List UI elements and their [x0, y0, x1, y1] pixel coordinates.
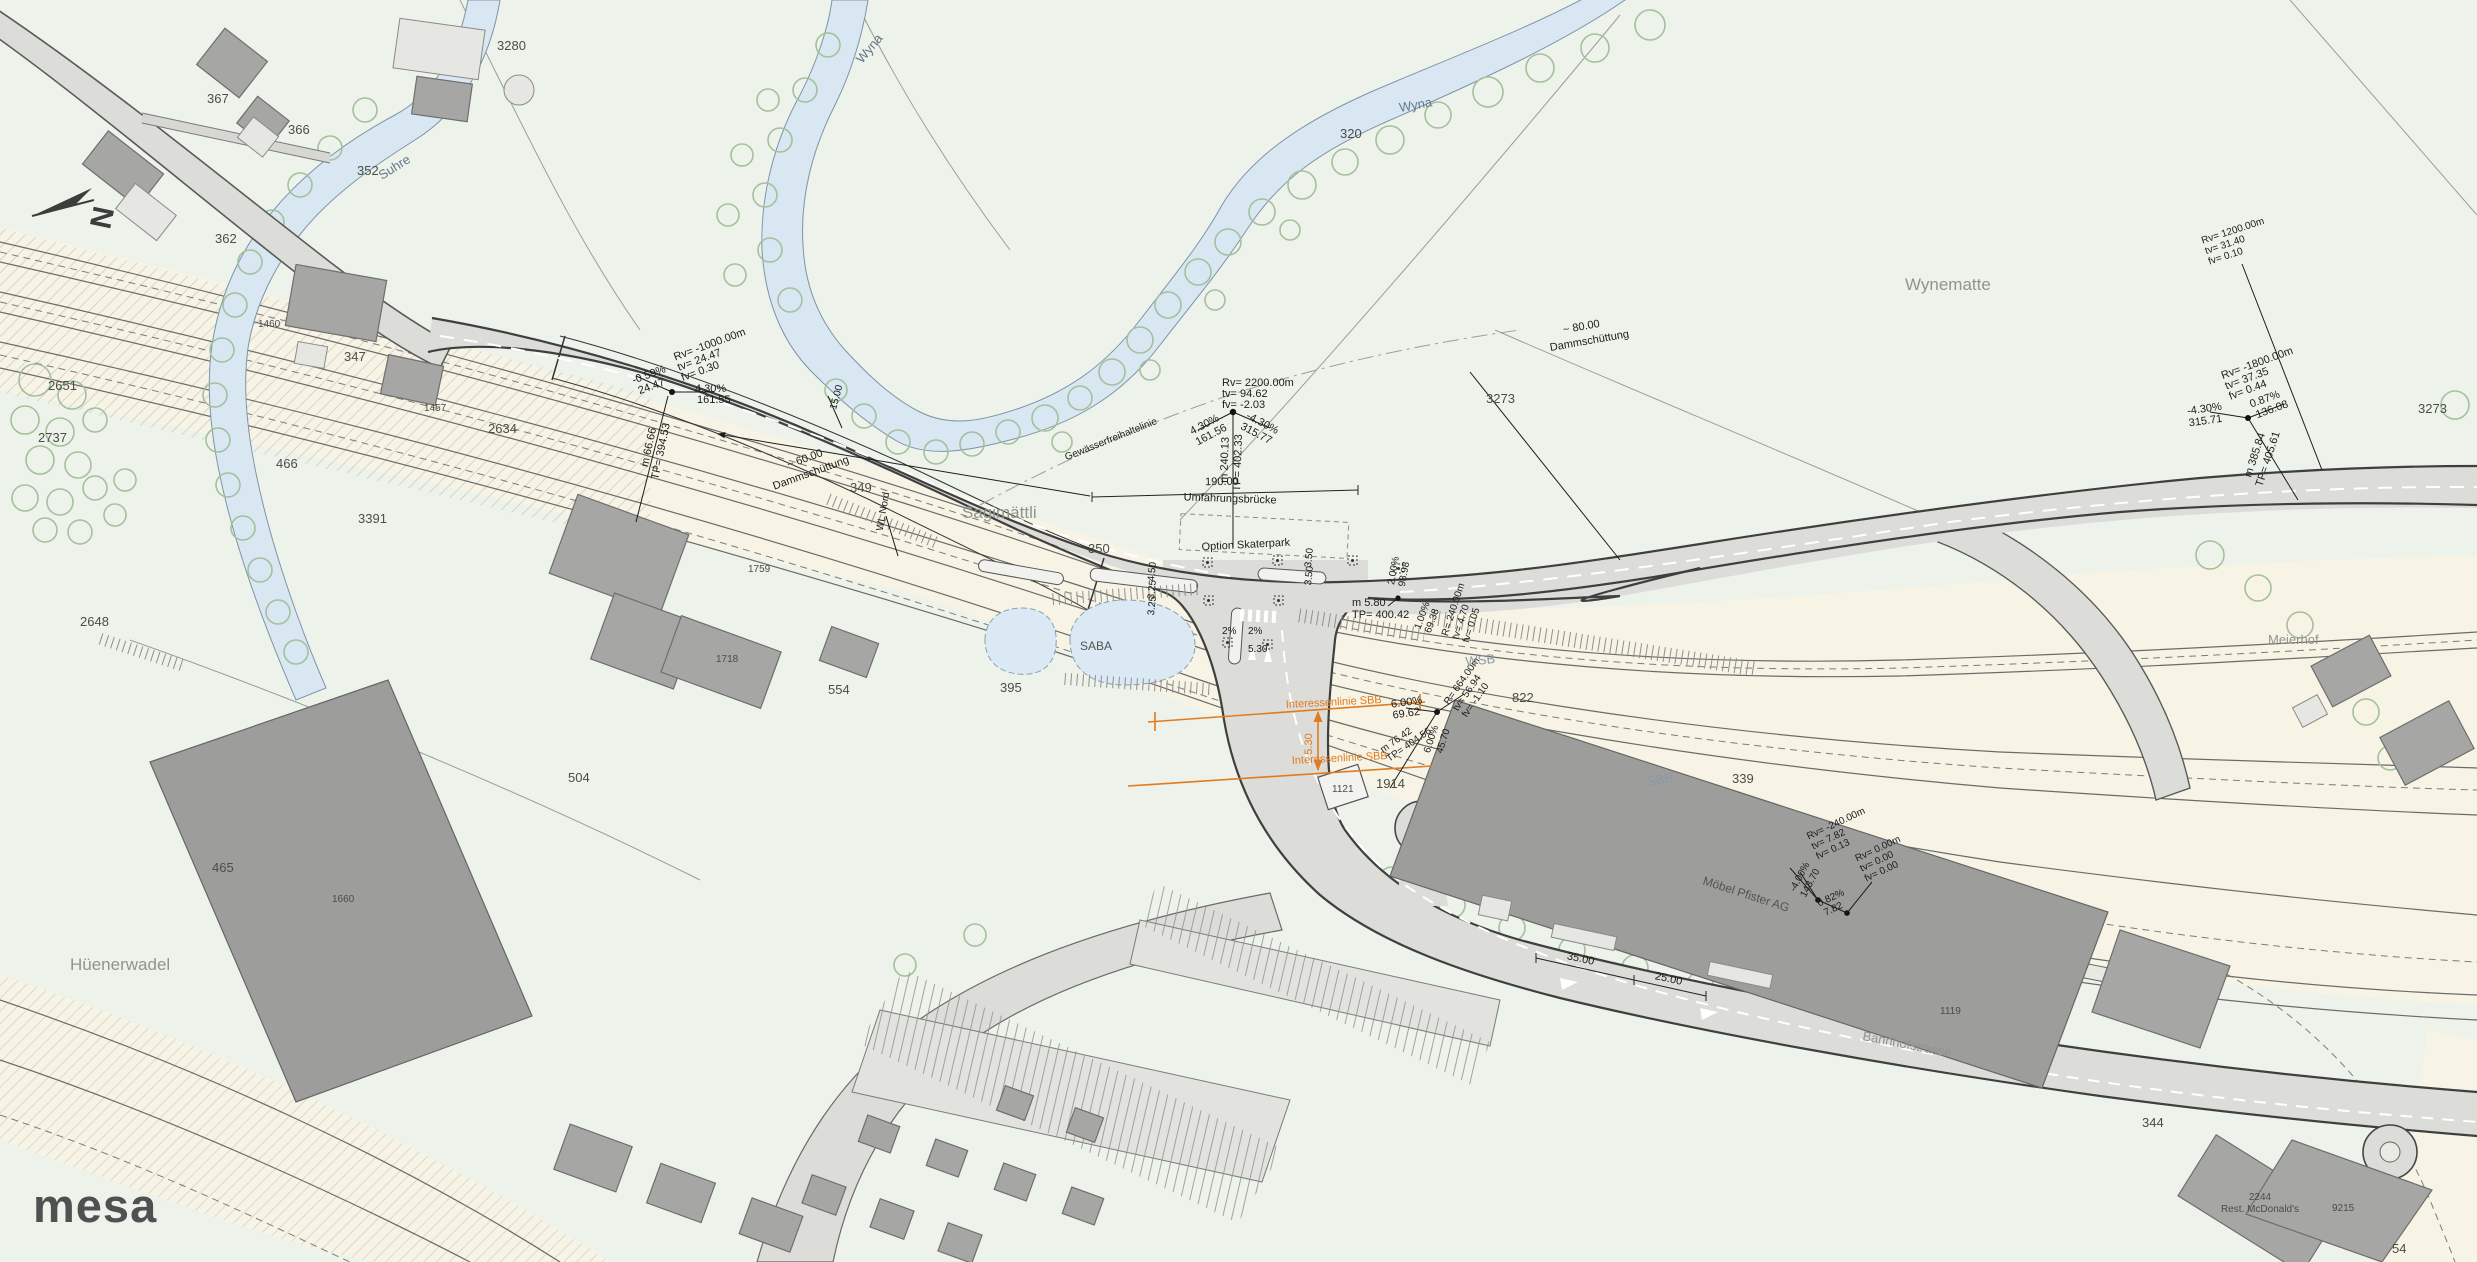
parcel: 362 — [215, 231, 237, 246]
parcel: 54 — [2392, 1241, 2406, 1256]
ann-a-s2b: 161.55 — [697, 394, 731, 406]
parcel: 320 — [1340, 126, 1362, 141]
annotation-c-slope1: -4.30% 315.71 — [2186, 401, 2224, 430]
parcel: 2648 — [80, 614, 109, 629]
plan-canvas: Interessenlinie SBB Interessenlinie SBB … — [0, 0, 2477, 1262]
area-wynematte: Wynematte — [1905, 275, 1991, 294]
north-arrow: N — [32, 188, 120, 231]
north-letter: N — [83, 203, 120, 231]
parcel: 3280 — [497, 38, 526, 53]
parcel: 1914 — [1376, 776, 1405, 791]
area-sagimaettli: Sagimättli — [962, 503, 1037, 522]
lane-width-1: 4.50 — [1146, 561, 1159, 582]
building — [197, 28, 268, 97]
annotation-a-block: Rv= -1000.00m tv= 24.47 fv= 0.30 — [672, 326, 755, 384]
orange-dim-530: 5.30 — [1303, 733, 1315, 754]
building — [294, 342, 327, 369]
silo — [504, 75, 534, 105]
bridge-name: Umfahrungsbrücke — [1183, 491, 1276, 506]
industrial-building — [150, 680, 532, 1102]
damm-east-label: Dammschüttung — [1549, 328, 1630, 354]
building — [647, 1163, 716, 1222]
building — [412, 76, 473, 121]
parcel: 3273 — [1486, 391, 1515, 406]
saba-label: SABA — [1080, 639, 1112, 653]
parcel: 504 — [568, 770, 590, 785]
ann-b-fv: fv= -2.03 — [1222, 399, 1265, 411]
parcel: 466 — [276, 456, 298, 471]
parcel: 2634 — [488, 421, 517, 436]
cross-slope-1: 2% — [1222, 626, 1237, 637]
annotation-b-slope2: -4.30% 315.77 — [1238, 410, 1280, 448]
wsb-label: WSB — [1465, 651, 1496, 669]
parcel: 9215 — [2332, 1203, 2355, 1214]
parcel: 3273 — [2418, 401, 2447, 416]
parcel: 367 — [207, 91, 229, 106]
parcel: 1121 — [1332, 784, 1354, 795]
parcel: 822 — [1512, 690, 1534, 705]
mcdonalds-number: 2244 — [2249, 1192, 2272, 1203]
mesa-logo: mesa — [33, 1178, 157, 1233]
annotation-d-block: Rv= 1200.00m tv= 31.40 fv= 0.10 — [2200, 216, 2272, 268]
parcel: 465 — [212, 860, 234, 875]
lane-width-5: 3.50 — [1303, 565, 1316, 586]
parcel: 2737 — [38, 430, 67, 445]
parcel: 339 — [1732, 771, 1754, 786]
building — [819, 627, 878, 678]
parcel: 349 — [850, 480, 872, 495]
ann-h-m: m 5.80 — [1352, 597, 1386, 609]
parcel: 554 — [828, 682, 850, 697]
parcel: 1660 — [332, 894, 355, 905]
parcel: 2651 — [48, 378, 77, 393]
parcel: 344 — [2142, 1115, 2164, 1130]
lane-width-3: 3.25 — [1146, 595, 1159, 616]
parcel: 366 — [288, 122, 310, 137]
parcel: 350 — [1088, 541, 1110, 556]
area-huenerwadel: Hüenerwadel — [70, 955, 170, 974]
parcel: 3391 — [358, 511, 387, 526]
parcel: 1759 — [748, 564, 771, 575]
parcel: 1718 — [716, 654, 739, 665]
parcel: 1460 — [258, 319, 281, 330]
gewaesser-label: Gewässerfreihaltelinie — [1063, 416, 1159, 463]
lane-width-4: 3.50 — [1303, 547, 1316, 568]
parcel: 347 — [344, 349, 366, 364]
parcel: 1119 — [1940, 1006, 1961, 1017]
area-meierhof: Meierhof — [2268, 632, 2319, 647]
leg-width: 5.30 — [1248, 644, 1268, 655]
parcel: 395 — [1000, 680, 1022, 695]
mcdonalds-label: Rest. McDonald's — [2221, 1204, 2299, 1215]
site-plan: Interessenlinie SBB Interessenlinie SBB … — [0, 0, 2477, 1262]
cross-slope-2: 2% — [1248, 626, 1263, 637]
ann-h-tp: TP= 400.42 — [1352, 609, 1409, 621]
building — [554, 1124, 632, 1192]
option-skaterpark-label: Option Skaterpark — [1201, 537, 1291, 554]
parcel: 352 — [357, 163, 379, 178]
bridge-length: 190.00 — [1205, 476, 1239, 489]
parcel: 1457 — [424, 403, 447, 414]
